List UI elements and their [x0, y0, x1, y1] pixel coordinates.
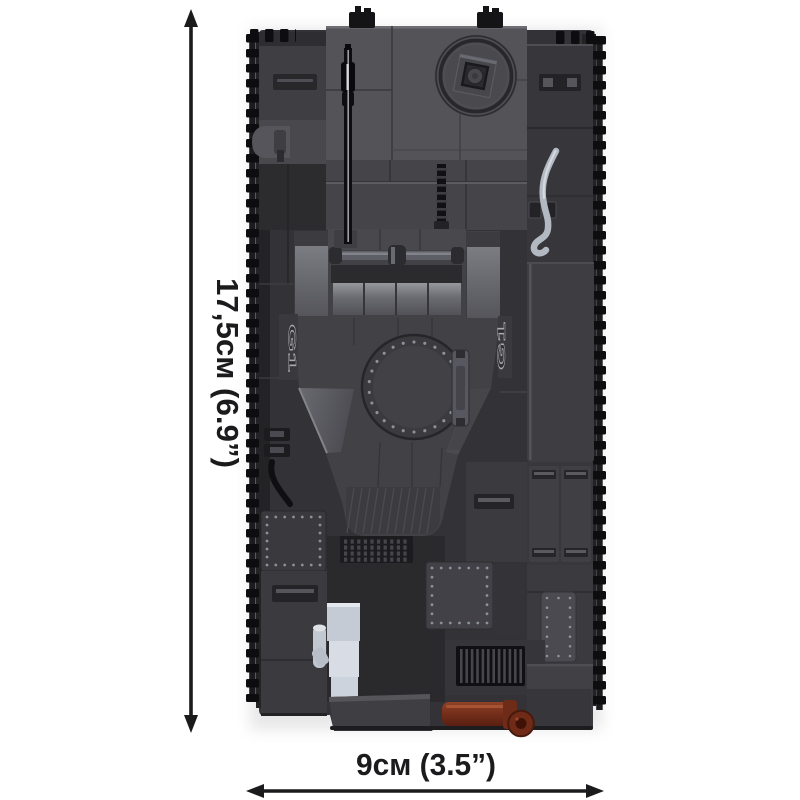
svg-text:G1: G1 [495, 322, 507, 370]
svg-text:17,5см (6.9”): 17,5см (6.9”) [210, 278, 245, 468]
svg-text:G1: G1 [286, 324, 298, 372]
svg-text:9см (3.5”): 9см (3.5”) [356, 747, 496, 782]
